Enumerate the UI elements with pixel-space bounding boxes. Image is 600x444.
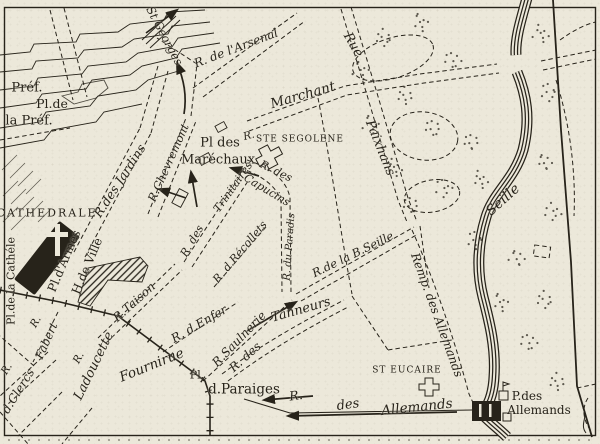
route-arrow <box>191 172 197 207</box>
map-border <box>5 8 596 441</box>
map-canvas <box>0 0 600 444</box>
route-arrow <box>264 396 313 400</box>
cathedral-building <box>14 221 80 295</box>
fortification-lines <box>0 10 220 230</box>
allemands-street <box>244 399 472 413</box>
tram-line <box>0 290 210 436</box>
street-network <box>0 7 596 444</box>
cathedral-cross-icon <box>55 224 60 256</box>
city-map: Préf.Pl.dela Préf.St GeorgesR. de l'Arse… <box>0 0 600 444</box>
ste-segolene-church <box>252 141 285 173</box>
route-arrow <box>247 302 296 331</box>
st-georges-bridge <box>142 12 180 48</box>
block-outlines <box>172 122 227 208</box>
route-arrows <box>146 10 457 416</box>
river-seille <box>479 0 527 437</box>
railway-line <box>553 0 592 437</box>
garden-trees <box>352 13 565 391</box>
route-arrow <box>231 168 259 176</box>
st-eucaire-church <box>419 378 439 396</box>
hotel-de-ville-building <box>78 257 148 306</box>
